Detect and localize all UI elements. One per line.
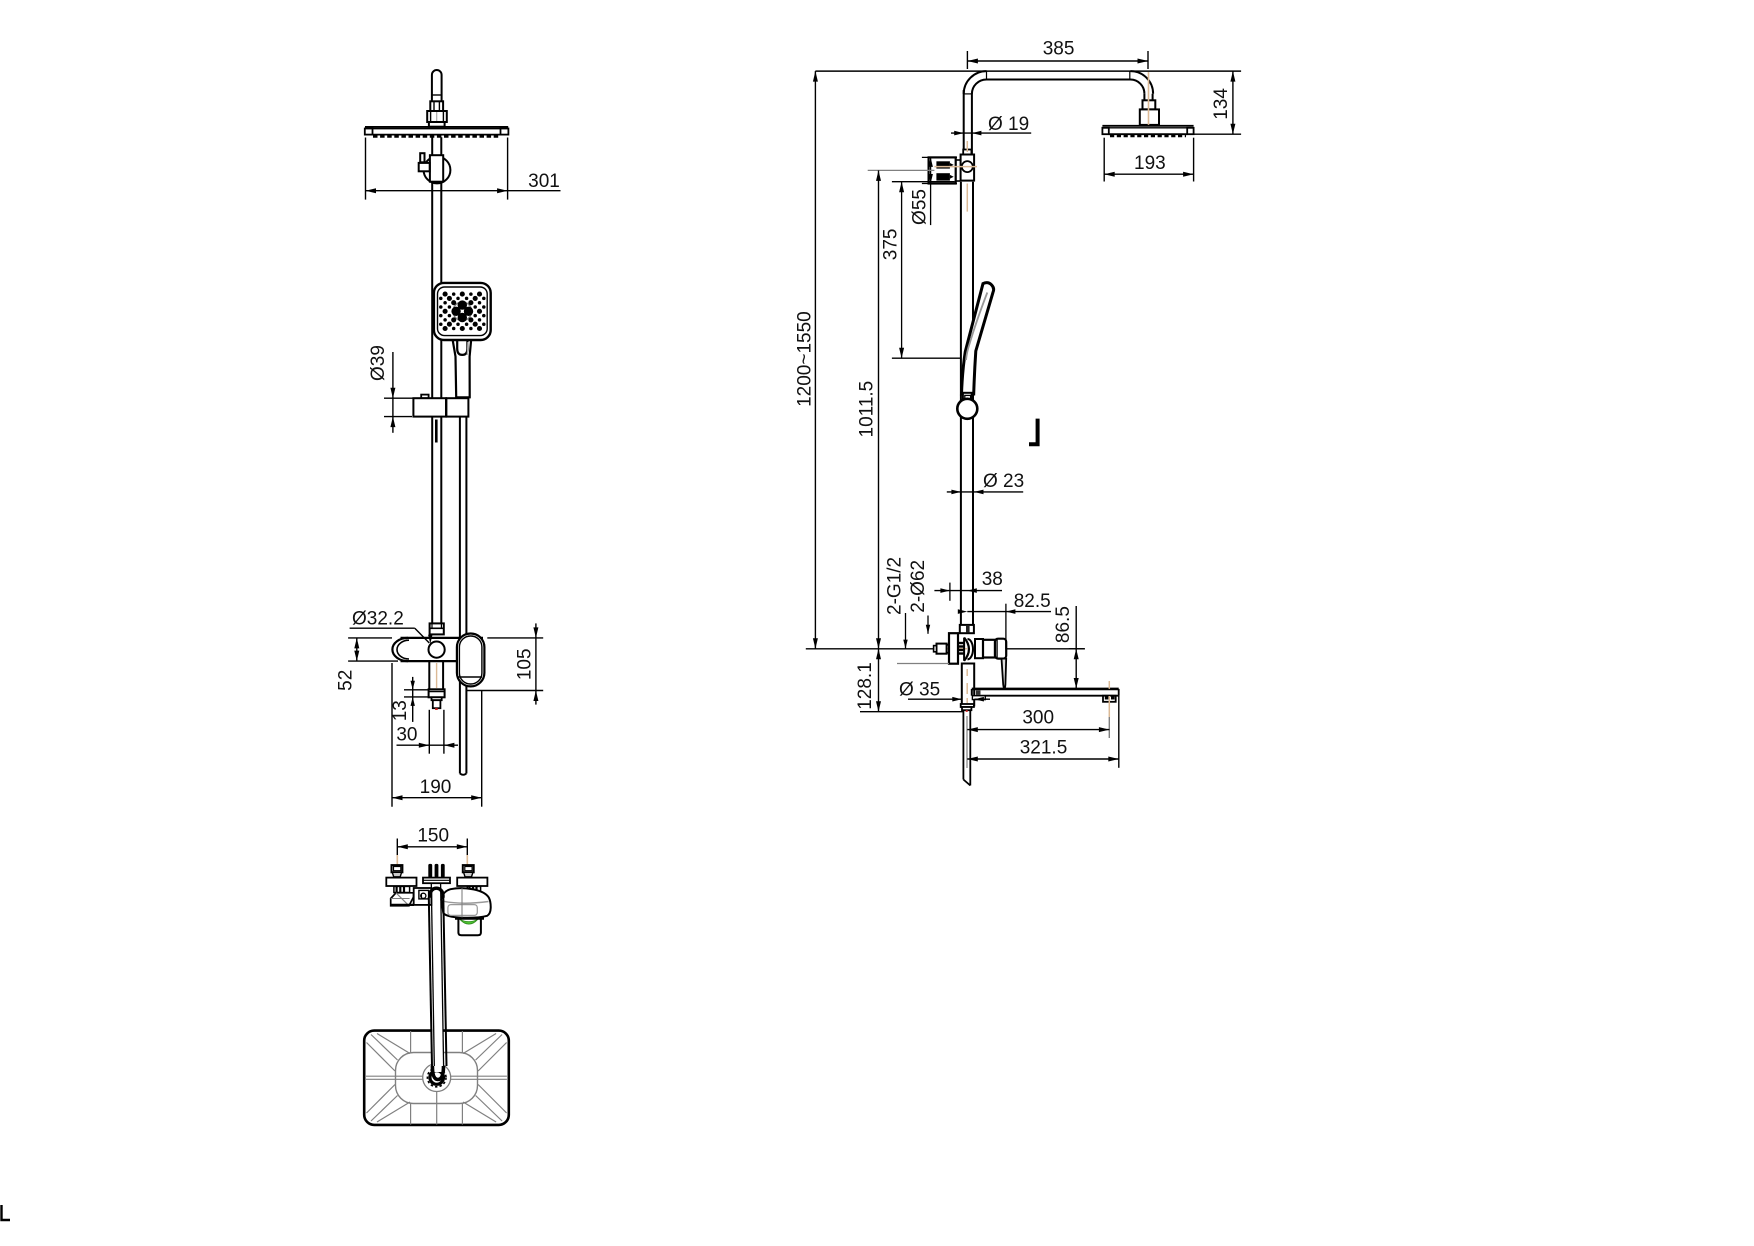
svg-text:1011.5: 1011.5 (856, 381, 877, 438)
svg-text:150: 150 (417, 825, 449, 846)
svg-text:13: 13 (390, 700, 411, 721)
svg-text:86.5: 86.5 (1053, 606, 1074, 643)
svg-text:52: 52 (336, 670, 357, 691)
svg-text:Ø 23: Ø 23 (983, 471, 1024, 492)
svg-text:128.1: 128.1 (855, 662, 876, 710)
svg-text:300: 300 (1022, 708, 1054, 729)
svg-text:30: 30 (396, 725, 417, 746)
svg-text:38: 38 (982, 569, 1003, 590)
svg-text:193: 193 (1134, 153, 1166, 174)
svg-text:134: 134 (1211, 88, 1232, 120)
svg-text:2-Ø62: 2-Ø62 (908, 560, 929, 613)
svg-text:105: 105 (515, 648, 536, 680)
svg-text:375: 375 (880, 229, 901, 261)
svg-text:Ø39: Ø39 (368, 345, 389, 381)
svg-text:1200~1550: 1200~1550 (794, 311, 815, 407)
svg-text:Ø55: Ø55 (909, 189, 930, 225)
svg-text:Ø32.2: Ø32.2 (352, 609, 404, 630)
svg-text:385: 385 (1043, 39, 1075, 60)
svg-text:321.5: 321.5 (1020, 737, 1068, 758)
svg-text:190: 190 (420, 777, 452, 798)
svg-text:Ø 35: Ø 35 (899, 680, 940, 701)
svg-text:301: 301 (528, 171, 560, 192)
svg-text:82.5: 82.5 (1014, 591, 1051, 612)
svg-text:Ø 19: Ø 19 (988, 114, 1029, 135)
svg-text:2-G1/2: 2-G1/2 (885, 557, 906, 615)
